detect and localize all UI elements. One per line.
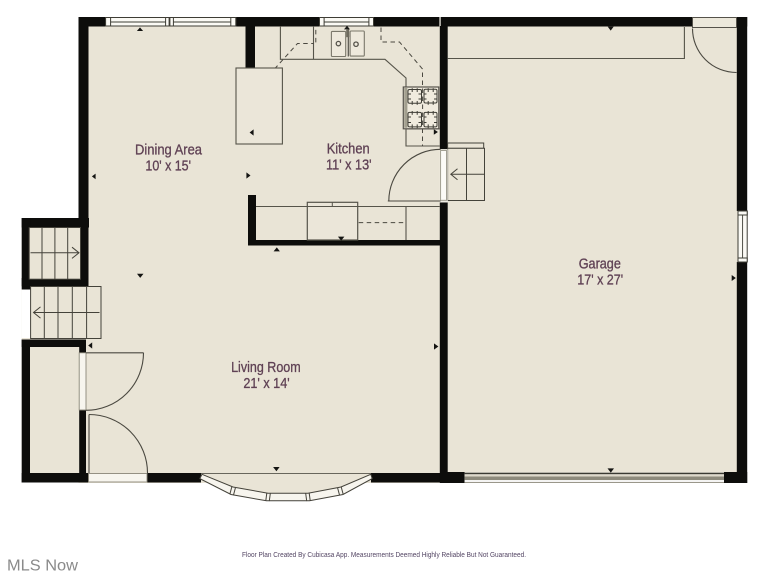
svg-text:Dining Area: Dining Area	[135, 142, 203, 158]
svg-text:21' x 14': 21' x 14'	[243, 376, 289, 392]
svg-text:Living Room: Living Room	[231, 360, 301, 376]
svg-text:Floor Plan Created By Cubicasa: Floor Plan Created By Cubicasa App. Meas…	[242, 552, 526, 559]
svg-text:17' x 27': 17' x 27'	[577, 273, 623, 289]
svg-text:Garage: Garage	[579, 256, 621, 272]
svg-text:MLS Now: MLS Now	[7, 557, 79, 574]
svg-text:Kitchen: Kitchen	[327, 141, 370, 157]
svg-text:11' x 13': 11' x 13'	[326, 157, 372, 173]
svg-text:10' x 15': 10' x 15'	[145, 159, 191, 175]
